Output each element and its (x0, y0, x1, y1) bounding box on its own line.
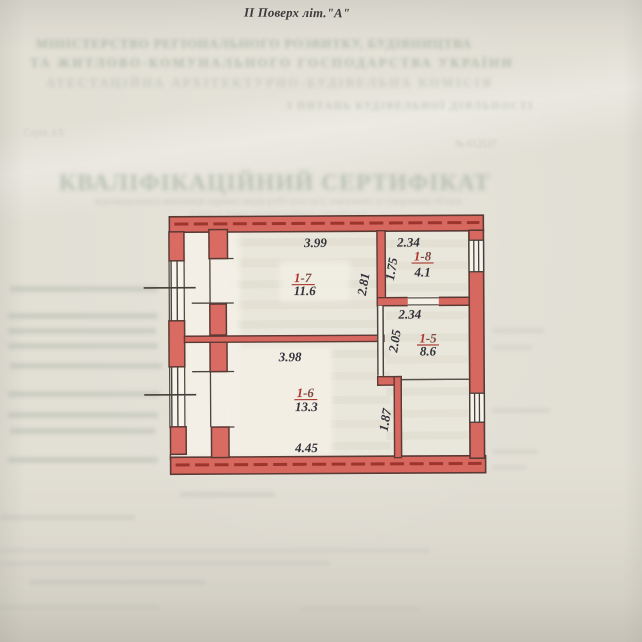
svg-text:8.6: 8.6 (420, 343, 437, 358)
svg-text:3.99: 3.99 (303, 235, 327, 250)
svg-text:4.1: 4.1 (413, 264, 430, 279)
svg-text:4.45: 4.45 (294, 440, 318, 455)
svg-text:11.6: 11.6 (294, 283, 317, 298)
svg-text:2.34: 2.34 (396, 235, 420, 250)
svg-text:3.98: 3.98 (278, 349, 302, 364)
svg-text:1-6: 1-6 (297, 385, 315, 400)
svg-text:13.3: 13.3 (295, 399, 318, 414)
svg-text:1-8: 1-8 (414, 248, 432, 263)
svg-text:2.34: 2.34 (397, 307, 421, 322)
